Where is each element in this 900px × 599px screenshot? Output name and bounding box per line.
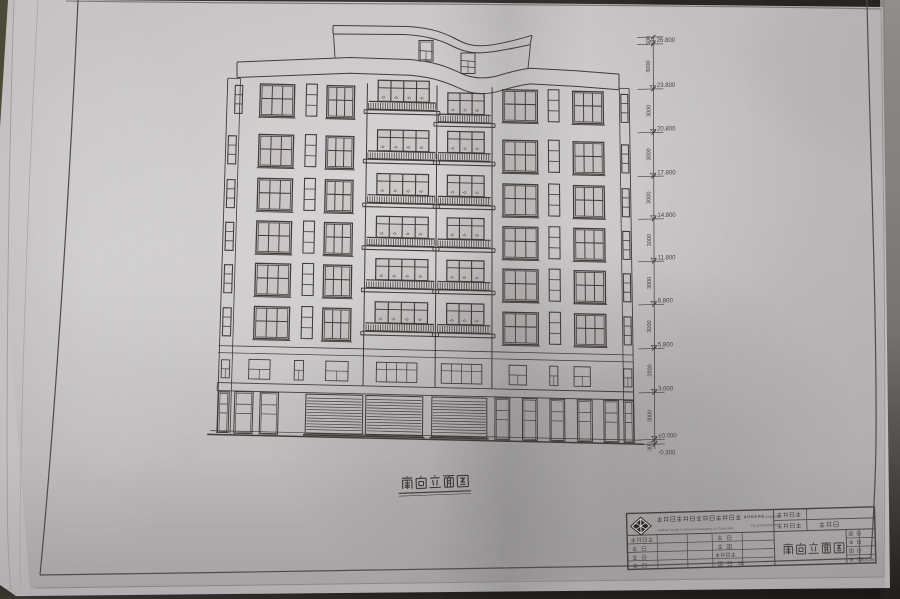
svg-text:3.000: 3.000 (658, 387, 674, 393)
svg-text:-0.300: -0.300 (658, 451, 676, 457)
svg-text:2800: 2800 (647, 364, 653, 376)
svg-text:±0.000: ±0.000 (658, 434, 677, 440)
svg-text:23.800: 23.800 (657, 83, 676, 89)
svg-text:3000: 3000 (648, 410, 654, 422)
svg-text:26.800: 26.800 (657, 38, 676, 44)
svg-text:17.800: 17.800 (657, 170, 676, 176)
svg-text:3000: 3000 (646, 105, 652, 117)
svg-text:5.800: 5.800 (658, 343, 674, 349)
svg-text:05: 05 (738, 561, 744, 567)
svg-text:2015.05: 2015.05 (859, 557, 875, 562)
svg-text:3000: 3000 (647, 234, 653, 246)
svg-text:3000: 3000 (647, 277, 653, 289)
svg-text:20.800: 20.800 (657, 127, 676, 133)
svg-text:3000: 3000 (646, 60, 652, 72)
svg-text:14.800: 14.800 (657, 213, 676, 219)
svg-text:3000: 3000 (647, 320, 653, 332)
svg-text:TEL (0750)2213403: TEL (0750)2213403 (751, 523, 778, 528)
svg-text:8.800: 8.800 (658, 299, 674, 305)
svg-text:3000: 3000 (647, 192, 653, 204)
svg-text:3000: 3000 (647, 148, 653, 160)
svg-text:300: 300 (648, 442, 654, 451)
svg-text:11.800: 11.800 (658, 255, 677, 261)
svg-text:500: 500 (646, 36, 652, 45)
